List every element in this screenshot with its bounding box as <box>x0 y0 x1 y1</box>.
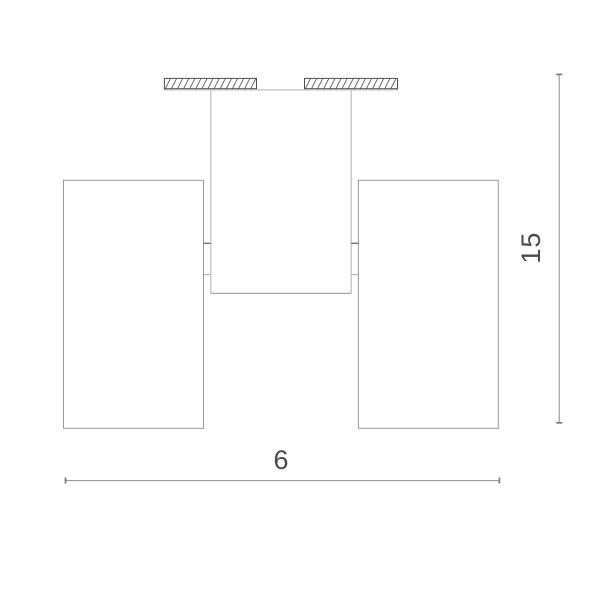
svg-text:15: 15 <box>516 232 546 264</box>
svg-text:6: 6 <box>273 445 288 475</box>
